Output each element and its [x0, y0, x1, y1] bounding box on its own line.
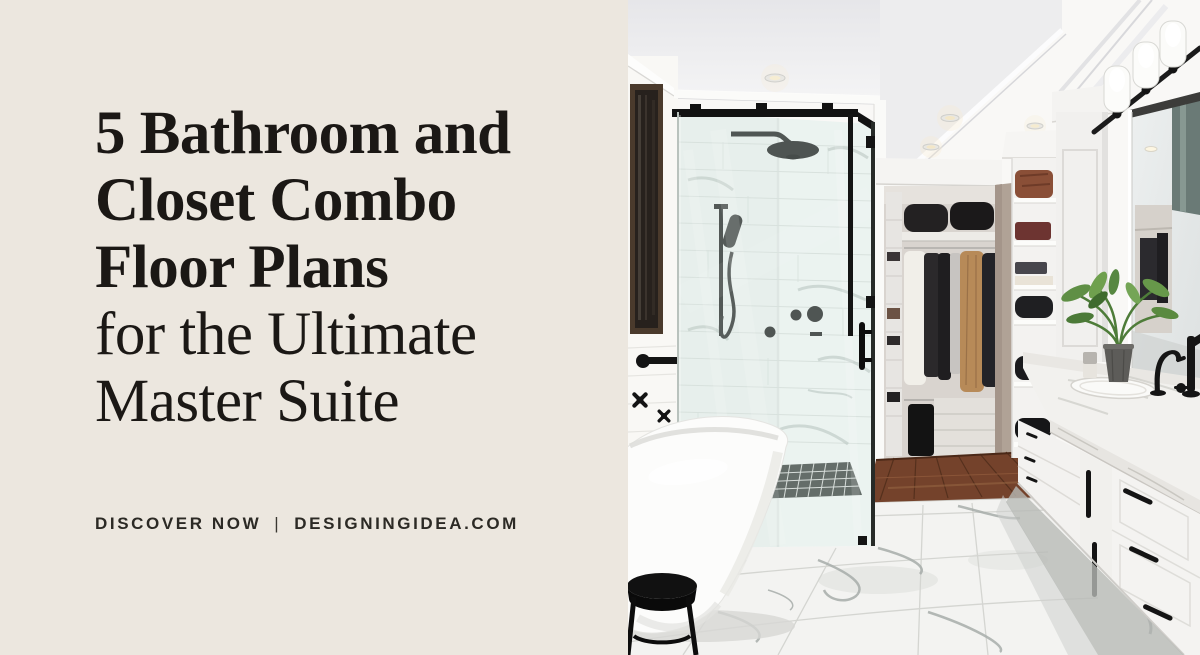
closet-duffel [904, 204, 948, 232]
hanging-clothes [904, 251, 1000, 392]
draped-garment [908, 404, 934, 456]
discover-now-label: DISCOVER NOW [95, 514, 261, 533]
footer-tagline: DISCOVER NOW|DESIGNINGIDEA.COM [95, 514, 519, 534]
text-panel: 5 Bathroom and Closet Combo Floor Plans … [0, 0, 628, 655]
walk-in-closet [876, 158, 1012, 462]
headline-line-1: 5 Bathroom and [95, 100, 511, 167]
headline-line-2: Closet Combo [95, 167, 511, 234]
headline-line-4: for the Ultimate [95, 301, 511, 368]
framed-mirror [630, 84, 663, 334]
shower-door-handle [859, 322, 865, 370]
site-name: DESIGNINGIDEA.COM [294, 514, 519, 533]
headline-line-3: Floor Plans [95, 234, 511, 301]
hero-photo [628, 0, 1200, 655]
closet-duffel [950, 202, 994, 230]
page-title: 5 Bathroom and Closet Combo Floor Plans … [95, 100, 511, 435]
promo-banner: 5 Bathroom and Closet Combo Floor Plans … [0, 0, 1200, 655]
candle [1083, 352, 1097, 378]
headline-line-5: Master Suite [95, 368, 511, 435]
separator: | [274, 514, 281, 533]
